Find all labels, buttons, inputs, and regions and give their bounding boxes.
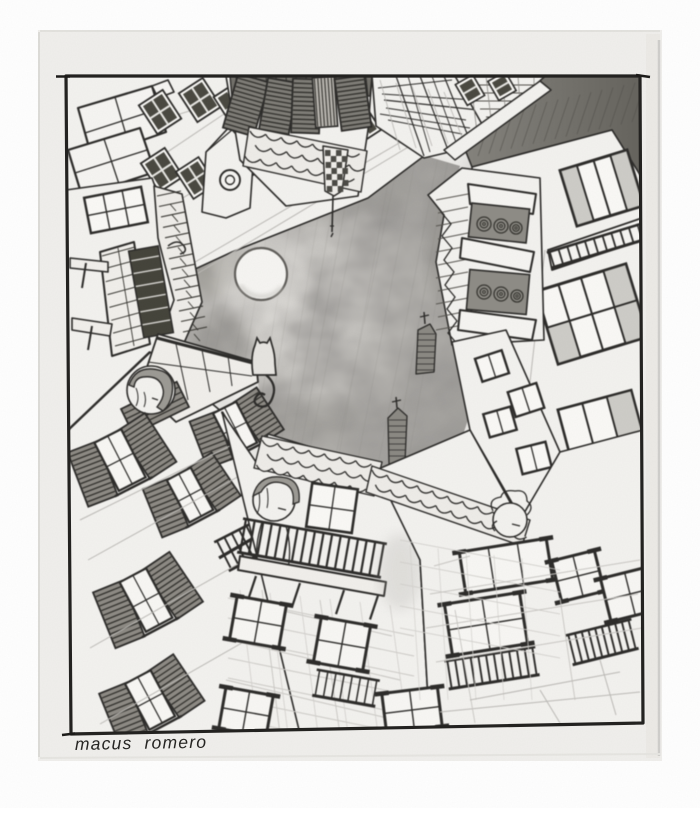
svg-text:macus romero: macus romero <box>75 732 208 754</box>
